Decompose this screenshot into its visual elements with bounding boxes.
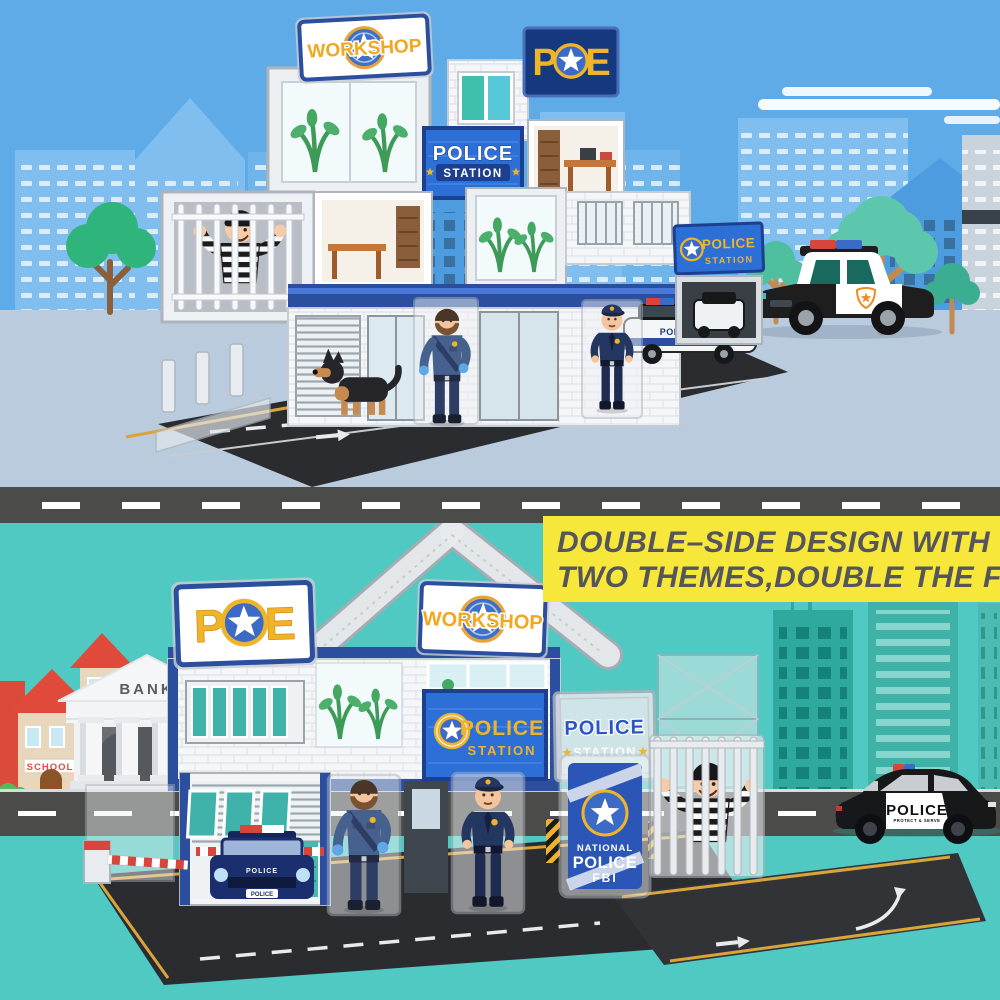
barrier-gate [84, 785, 188, 883]
glass-door-2 [480, 312, 558, 420]
pe-sign-bottom: P E [171, 577, 318, 670]
officer-beard-frame-bottom [328, 775, 400, 915]
station-blue-line2: STATION [467, 743, 536, 758]
jail-cell-bottom [650, 735, 764, 877]
brick-room-barred-top [566, 192, 690, 264]
workshop-sign-bottom: WORKSHOP [415, 579, 550, 660]
station-blue-line1: POLICE [460, 717, 544, 740]
sky-window-bottom [428, 663, 546, 691]
pe-sign-top: P E [524, 28, 618, 96]
banner-line2: TWO THEMES,DOUBLE THE F [557, 560, 1000, 595]
plant-window-bottom [316, 663, 402, 747]
station-sign-small-top: POLICE STATION [674, 223, 764, 274]
glass-room-plants-2-top [466, 188, 566, 288]
garage-bottom: POLICE POLICE [180, 773, 330, 905]
workshop-sign-text: WORKSHOP [422, 608, 543, 634]
pe-letter-e: E [585, 42, 610, 84]
fbi-banner: NATIONAL POLICE FBI [560, 755, 650, 897]
bank-label: BANK [119, 681, 174, 698]
station-sign-line1: POLICE [433, 143, 513, 165]
marketing-banner: DOUBLE–SIDE DESIGN WITH TWO THEMES,DOUBL… [543, 516, 1000, 602]
station-clear-line1: POLICE [564, 716, 645, 739]
fbi-line1: NATIONAL [577, 843, 633, 854]
station-sign-blue-bottom: POLICE STATION [424, 691, 546, 779]
banner-line1: DOUBLE–SIDE DESIGN WITH [557, 525, 1000, 560]
police-car-label: POLICE [886, 802, 948, 819]
garage-top [676, 276, 762, 344]
glass-room-plants-top [268, 68, 430, 196]
station-small-line2: STATION [705, 254, 754, 266]
top-scene: WORKSHOP P E POLICE STATION [0, 0, 1000, 490]
fbi-line3: FBI [592, 871, 617, 885]
road-dashes [0, 502, 1000, 509]
pe-letter-e: E [264, 597, 296, 650]
product-image: WORKSHOP P E POLICE STATION [0, 0, 1000, 1000]
teal-window-band [186, 681, 304, 743]
workshop-sign-top: WORKSHOP [295, 11, 434, 84]
garage-car-hood-label: POLICE [246, 868, 278, 875]
fbi-line2: POLICE [573, 854, 637, 872]
office-room-2-top [314, 192, 432, 290]
station-small-line1: POLICE [702, 235, 756, 252]
hazard-post [546, 819, 560, 863]
doorway-bottom [404, 781, 448, 893]
station-sign-line2: STATION [443, 168, 502, 180]
police-car-sublabel: PROTECT & SERVE [894, 818, 941, 823]
garage-car-plate: POLICE [251, 892, 273, 898]
officer-cap-frame-bottom [452, 773, 524, 913]
officer-cap-frame-top [582, 300, 642, 418]
officer-beard-frame-top [414, 298, 478, 427]
